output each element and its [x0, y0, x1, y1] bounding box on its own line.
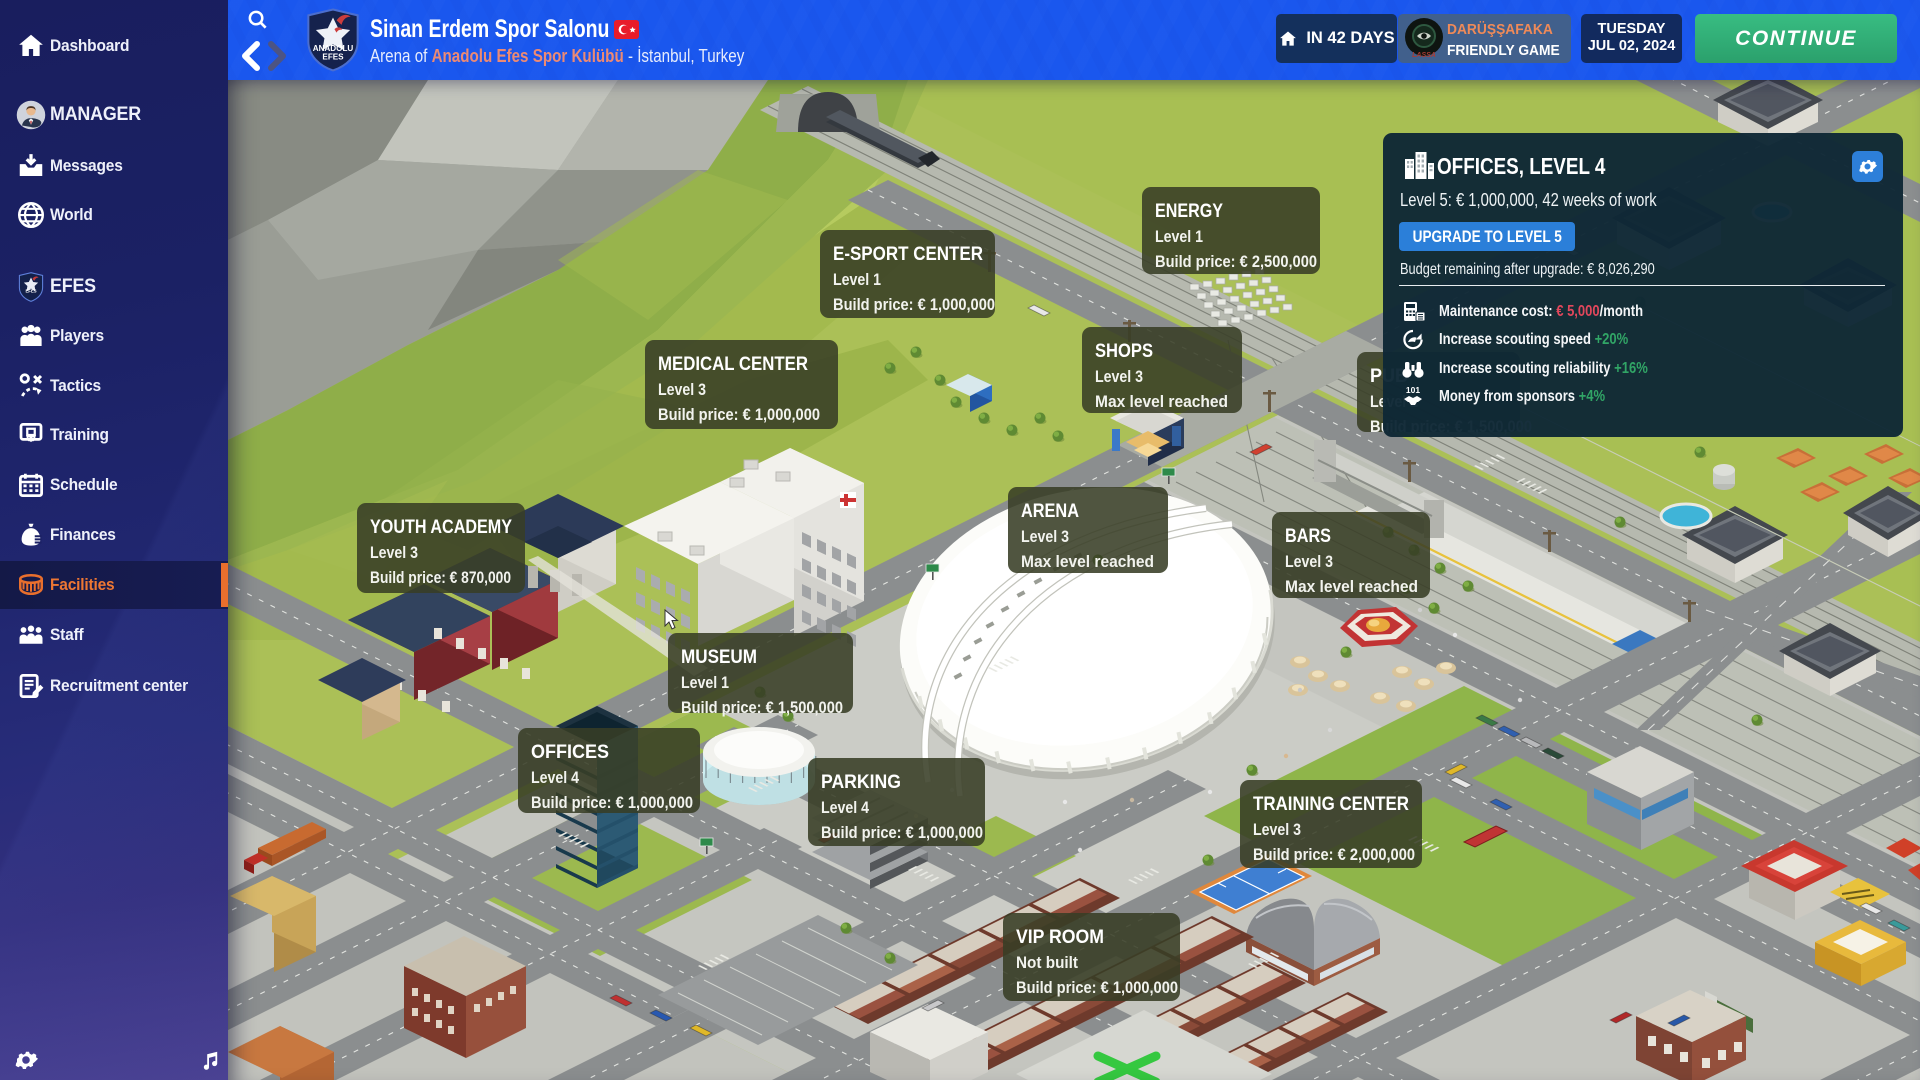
svg-text:EFES: EFES	[25, 288, 36, 293]
svg-text:Max level reached: Max level reached	[1095, 392, 1228, 411]
svg-text:Build price: € 1,500,000: Build price: € 1,500,000	[681, 698, 843, 717]
svg-text:Level 3: Level 3	[1021, 527, 1069, 546]
svg-text:TRAINING CENTER: TRAINING CENTER	[1253, 793, 1409, 815]
svg-text:Level 1: Level 1	[681, 673, 729, 692]
svg-text:VIP ROOM: VIP ROOM	[1016, 926, 1104, 948]
svg-text:Level 1: Level 1	[833, 270, 881, 289]
svg-text:Level 3: Level 3	[1095, 367, 1143, 386]
svg-text:101: 101	[1406, 385, 1420, 395]
svg-text:SHOPS: SHOPS	[1095, 340, 1153, 362]
svg-text:Build price: € 1,000,000: Build price: € 1,000,000	[531, 793, 693, 812]
svg-text:ENERGY: ENERGY	[1155, 200, 1223, 222]
svg-text:Build price: € 870,000: Build price: € 870,000	[370, 568, 511, 587]
svg-text:Not built: Not built	[1016, 953, 1078, 972]
svg-text:Build price: € 1,000,000: Build price: € 1,000,000	[821, 823, 983, 842]
svg-text:PARKING: PARKING	[821, 771, 901, 793]
svg-text:Max level reached: Max level reached	[1285, 577, 1418, 596]
svg-text:Level 3: Level 3	[658, 380, 706, 399]
svg-text:ANADOLU: ANADOLU	[313, 44, 354, 53]
svg-text:LASSA: LASSA	[1412, 52, 1436, 59]
svg-text:Level 3: Level 3	[1285, 552, 1333, 571]
svg-text:BARS: BARS	[1285, 525, 1331, 547]
svg-text:E-SPORT CENTER: E-SPORT CENTER	[833, 243, 983, 265]
svg-text:YOUTH ACADEMY: YOUTH ACADEMY	[370, 516, 512, 538]
svg-text:Build price: € 1,000,000: Build price: € 1,000,000	[658, 405, 820, 424]
svg-text:Build price: € 2,500,000: Build price: € 2,500,000	[1155, 252, 1317, 271]
svg-text:Max level reached: Max level reached	[1021, 552, 1154, 571]
svg-text:Build price: € 2,000,000: Build price: € 2,000,000	[1253, 845, 1415, 864]
svg-text:ARENA: ARENA	[1021, 500, 1079, 522]
svg-text:Level 3: Level 3	[370, 543, 418, 562]
svg-text:EFES: EFES	[322, 53, 344, 62]
svg-text:Build price: € 1,000,000: Build price: € 1,000,000	[833, 295, 995, 314]
svg-text:Level 3: Level 3	[1253, 820, 1301, 839]
svg-text:MUSEUM: MUSEUM	[681, 646, 757, 668]
svg-text:Build price: € 1,000,000: Build price: € 1,000,000	[1016, 978, 1178, 997]
svg-text:MEDICAL CENTER: MEDICAL CENTER	[658, 353, 808, 375]
svg-text:Level 4: Level 4	[531, 768, 579, 787]
svg-text:OFFICES: OFFICES	[531, 741, 609, 763]
svg-text:Level 1: Level 1	[1155, 227, 1203, 246]
svg-text:Level 4: Level 4	[821, 798, 869, 817]
